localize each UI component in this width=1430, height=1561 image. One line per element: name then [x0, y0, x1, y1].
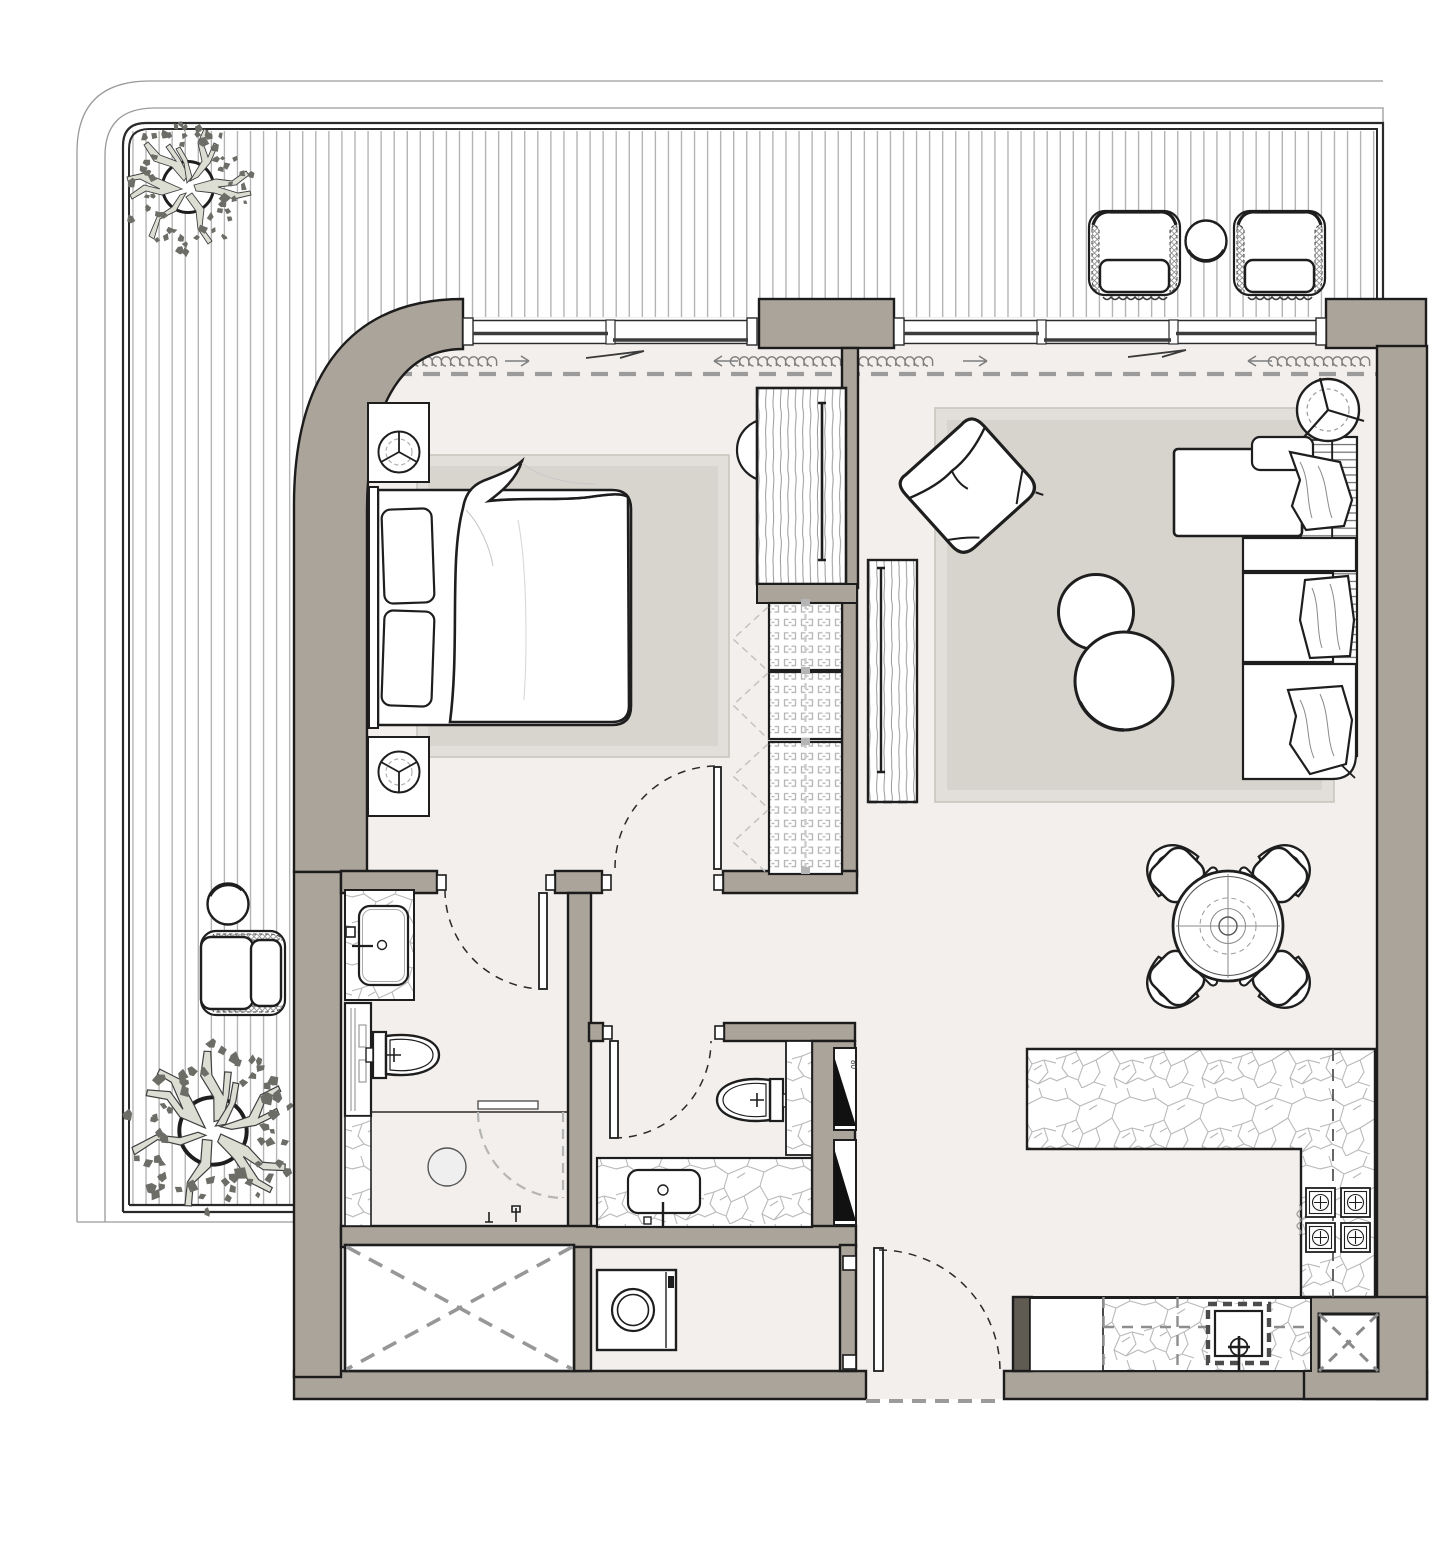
svg-text:80: 80 [849, 1060, 858, 1069]
